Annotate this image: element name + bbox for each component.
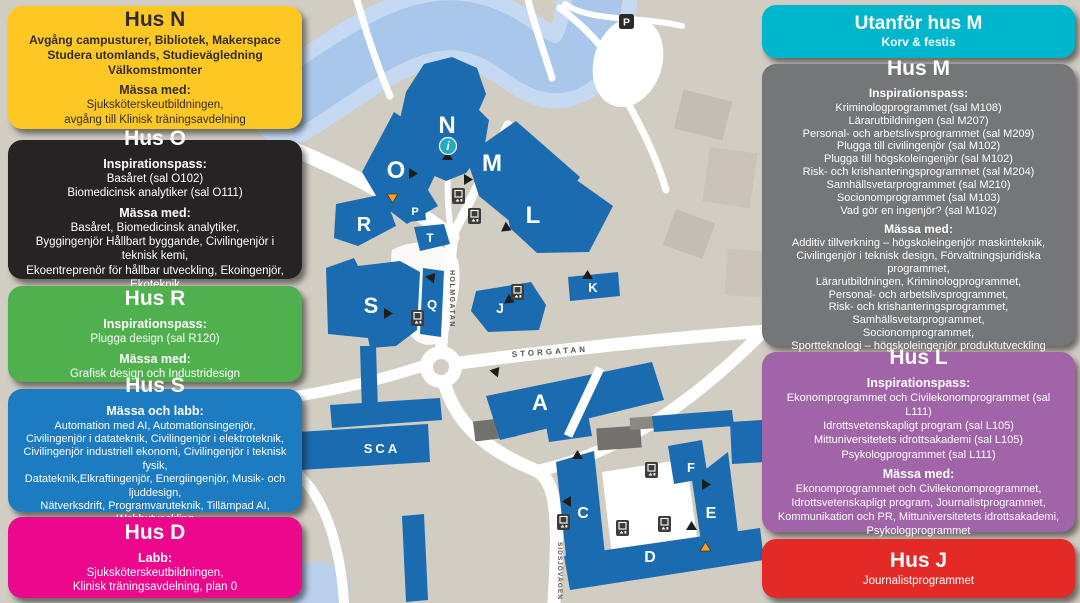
elevator-icon xyxy=(557,514,570,530)
box-line: Psykologprogrammet xyxy=(772,524,1065,538)
elevator-icon xyxy=(658,516,671,532)
box-line: avgång till Klinisk träningsavdelning xyxy=(18,113,292,127)
building-label-t: T xyxy=(426,231,434,245)
box-line: Civilingenjör industriell ekonomi, Civil… xyxy=(18,446,292,473)
box-line: Socionomprogrammet, xyxy=(772,327,1065,340)
building-label-s: S xyxy=(364,293,379,318)
box-line: Kommunikation och PR, Mittuniversitetets… xyxy=(772,510,1065,524)
building-label-a: A xyxy=(532,390,548,415)
box-line: Journalistprogrammet xyxy=(772,574,1065,588)
box-line: Civilingenjör i teknisk design, Förvaltn… xyxy=(772,250,1065,276)
box-section-header: Inspirationspass: xyxy=(772,86,1065,102)
box-line: Basåret (sal O102) xyxy=(18,172,292,186)
building-label-l: L xyxy=(526,202,541,229)
box-line: Psykologprogrammet (sal L111) xyxy=(772,448,1065,462)
elevator-icon xyxy=(511,284,524,300)
building-label-j: J xyxy=(496,300,504,316)
box-line: Personal- och arbetslivsprogrammet (sal … xyxy=(772,128,1065,141)
street-label-holmgatan: HOLMGATAN xyxy=(448,270,455,328)
box-line: Plugga till högskoleingenjör (sal M102) xyxy=(772,153,1065,166)
box-line: Sjuksköterskeutbildningen, xyxy=(18,566,292,580)
box-line: Sjuksköterskeutbildningen, xyxy=(18,98,292,112)
info-box-hus-d: Hus D Labb: Sjuksköterskeutbildningen, K… xyxy=(8,517,302,598)
box-line: Basåret, Biomedicinsk analytiker, xyxy=(18,221,292,235)
box-line: Lärarutbildningen, Kriminologprogrammet, xyxy=(772,276,1065,289)
elevator-icon xyxy=(452,188,465,204)
box-line: Plugga design (sal R120) xyxy=(18,332,292,346)
box-title: Hus R xyxy=(18,287,292,311)
building-label-f: F xyxy=(687,460,695,475)
box-title: Hus J xyxy=(772,549,1065,573)
building-label-p: P xyxy=(411,206,418,218)
info-box-hus-s: Hus S Mässa och labb: Automation med AI,… xyxy=(8,389,302,512)
box-line: Ekonomprogrammet och Civilekonomprogramm… xyxy=(772,482,1065,496)
box-line: Samhällsvetarprogrammet (sal M210) xyxy=(772,179,1065,192)
box-section-header: Inspirationspass: xyxy=(18,156,292,172)
box-line: Avgång campusturer, Bibliotek, Makerspac… xyxy=(18,33,292,48)
elevator-icon xyxy=(645,462,658,478)
building-label-sca: SCA xyxy=(364,441,400,456)
building-u3 xyxy=(730,420,764,464)
box-section-header: Mässa med: xyxy=(18,351,292,367)
box-line: Studera utomlands, Studievägledning xyxy=(18,48,292,63)
info-box-hus-l: Hus L Inspirationspass: Ekonomprogrammet… xyxy=(762,352,1075,532)
elevator-icon xyxy=(616,520,629,536)
box-section-header: Mässa och labb: xyxy=(18,403,292,419)
box-section-header: Inspirationspass: xyxy=(18,316,292,332)
box-line: Korv & festis xyxy=(772,35,1065,50)
building-label-q: Q xyxy=(427,297,437,312)
box-line: Mittuniversitetets idrottsakademi (sal L… xyxy=(772,433,1065,447)
info-box-hus-m: Hus M Inspirationspass: Kriminologprogra… xyxy=(762,64,1075,346)
building-label-d: D xyxy=(644,549,656,566)
box-line: Klinisk träningsavdelning, plan 0 xyxy=(18,580,292,594)
box-line: Ekonomprogrammet och Civilekonomprogramm… xyxy=(772,391,1065,419)
box-section-header: Mässa med: xyxy=(18,82,292,98)
info-icon: i xyxy=(440,138,457,155)
box-title: Hus M xyxy=(772,57,1065,81)
info-box-hus-r: Hus R Inspirationspass: Plugga design (s… xyxy=(8,286,302,382)
box-line: Plugga till civilingenjör (sal M102) xyxy=(772,140,1065,153)
box-title: Hus L xyxy=(772,346,1065,370)
box-line: Kriminologprogrammet (sal M108) xyxy=(772,102,1065,115)
parking-icon-letter: P xyxy=(623,17,630,29)
box-line: Additiv tillverkning – högskoleingenjör … xyxy=(772,237,1065,250)
info-box-hus-j: Hus J Journalistprogrammet xyxy=(762,539,1075,598)
elevator-icon xyxy=(411,310,424,326)
box-line: Idrottsvetenskapligt program, Journalist… xyxy=(772,496,1065,510)
box-section-header: Labb: xyxy=(18,550,292,566)
building-label-r: R xyxy=(357,214,372,236)
building-label-c: C xyxy=(577,505,589,522)
parking-icon: P xyxy=(619,14,634,29)
box-line: Idrottsvetenskapligt program (sal L105) xyxy=(772,419,1065,433)
box-title: Hus S xyxy=(18,374,292,398)
box-line: Personal- och arbetslivsprogrammet, xyxy=(772,289,1065,302)
info-box-hus-o: Hus O Inspirationspass: Basåret (sal O10… xyxy=(8,140,302,279)
box-line: Välkomstmonter xyxy=(18,63,292,78)
box-title: Hus O xyxy=(18,127,292,151)
box-line: Vad gör en ingenjör? (sal M102) xyxy=(772,205,1065,218)
elevator-icon xyxy=(468,208,481,224)
box-line: Biomedicinsk analytiker (sal O111) xyxy=(18,186,292,200)
building-bottom-bar xyxy=(402,514,428,602)
street-label-sidsjovagen: SIDSJÖVÄGEN xyxy=(556,542,565,600)
building-label-o: O xyxy=(387,157,406,184)
info-box-hus-n: Hus N Avgång campusturer, Bibliotek, Mak… xyxy=(8,6,302,129)
box-line: Lärarutbildningen (sal M207) xyxy=(772,115,1065,128)
box-section-header: Mässa med: xyxy=(772,466,1065,482)
building-label-n: N xyxy=(438,112,455,139)
box-line: Civilingenjör i datateknik, Civilingenjö… xyxy=(18,433,292,446)
building-label-m: M xyxy=(482,150,502,177)
info-box-utanfor-hus-m: Utanför hus M Korv & festis xyxy=(762,5,1075,58)
box-line: Risk- och krishanteringsprogrammet, Samh… xyxy=(772,301,1065,327)
building-s-link xyxy=(360,346,378,412)
box-line: Automation med AI, Automationsingenjör, xyxy=(18,420,292,433)
building-label-e: E xyxy=(706,505,717,522)
box-line: Datateknik,Elkraftingenjör, Energiingenj… xyxy=(18,473,292,500)
box-title: Hus N xyxy=(18,8,292,32)
box-line: Risk- och krishanteringsprogrammet (sal … xyxy=(772,166,1065,179)
box-title: Utanför hus M xyxy=(772,13,1065,35)
box-title: Hus D xyxy=(18,521,292,545)
box-section-header: Inspirationspass: xyxy=(772,375,1065,391)
box-line: Socionomprogrammet (sal M103) xyxy=(772,192,1065,205)
box-section-header: Mässa med: xyxy=(772,222,1065,238)
building-label-k: K xyxy=(588,280,598,295)
box-line: Byggingenjör Hållbart byggande, Civiling… xyxy=(18,235,292,264)
box-section-header: Mässa med: xyxy=(18,205,292,221)
